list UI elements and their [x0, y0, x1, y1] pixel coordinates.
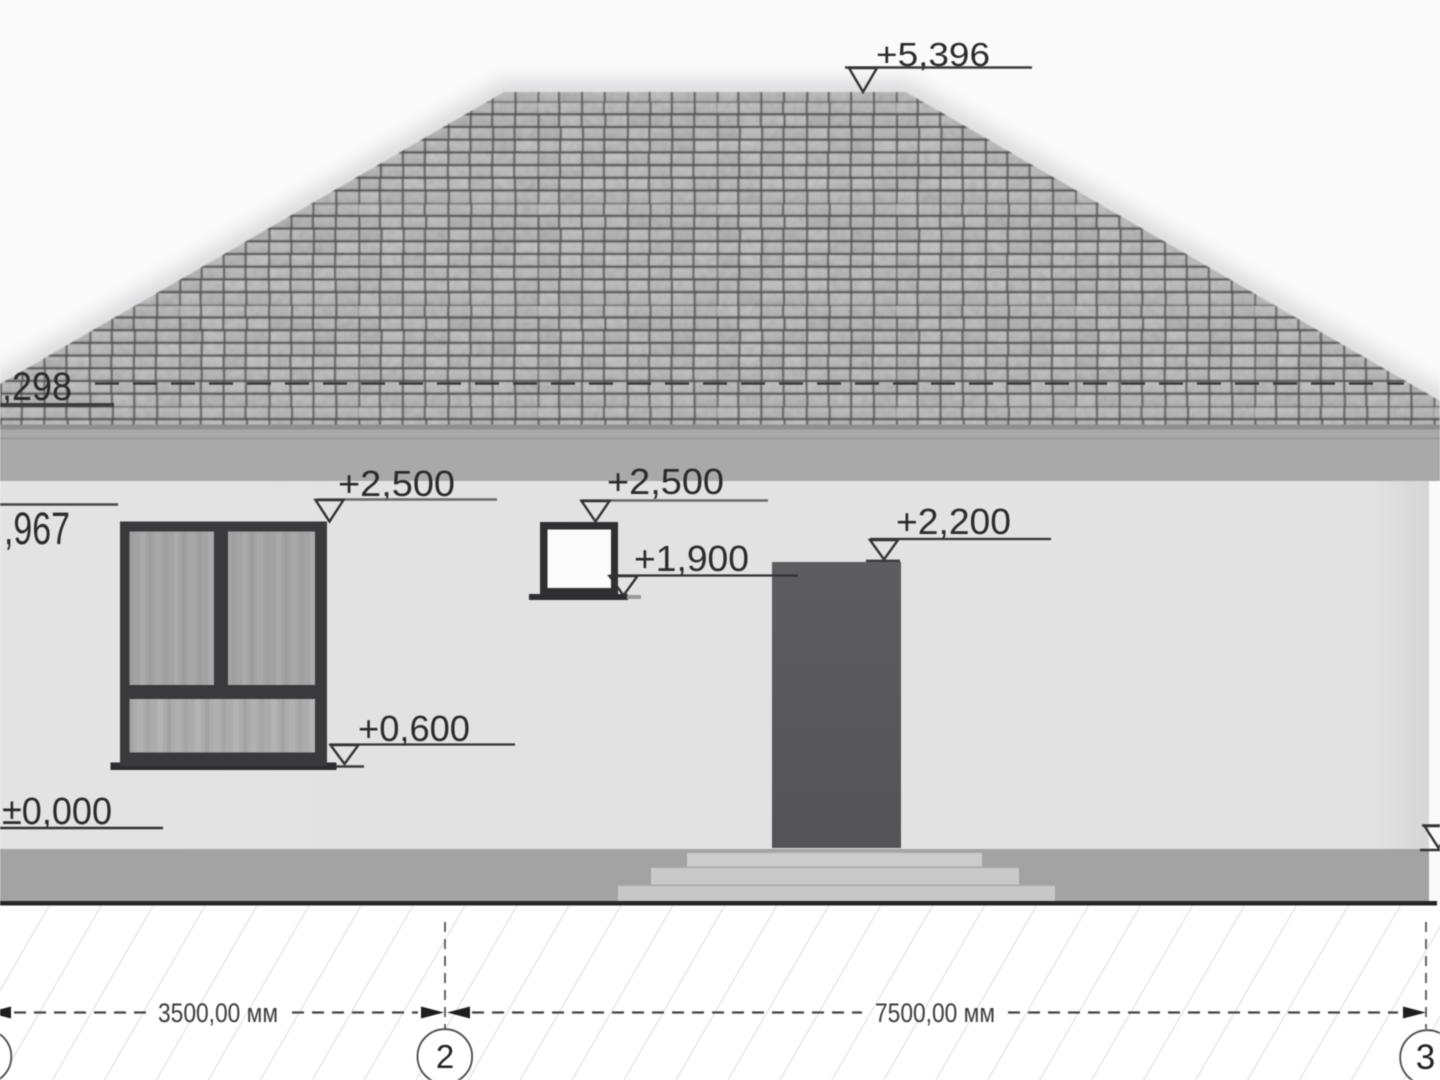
svg-text:7500,00 мм: 7500,00 мм [875, 998, 995, 1028]
svg-text:±0,000: ±0,000 [2, 791, 112, 833]
svg-text:+2,500: +2,500 [607, 461, 724, 502]
svg-text:2: 2 [436, 1038, 454, 1075]
svg-text:3500,00 мм: 3500,00 мм [158, 998, 278, 1028]
svg-text:+1,900: +1,900 [634, 538, 749, 579]
svg-text:3: 3 [1416, 1038, 1435, 1077]
svg-text:+0,600: +0,600 [358, 708, 470, 749]
svg-text:,298: ,298 [2, 365, 72, 409]
svg-text:,967: ,967 [4, 503, 70, 554]
svg-text:+2,200: +2,200 [896, 501, 1011, 542]
svg-text:+2,500: +2,500 [338, 463, 455, 504]
